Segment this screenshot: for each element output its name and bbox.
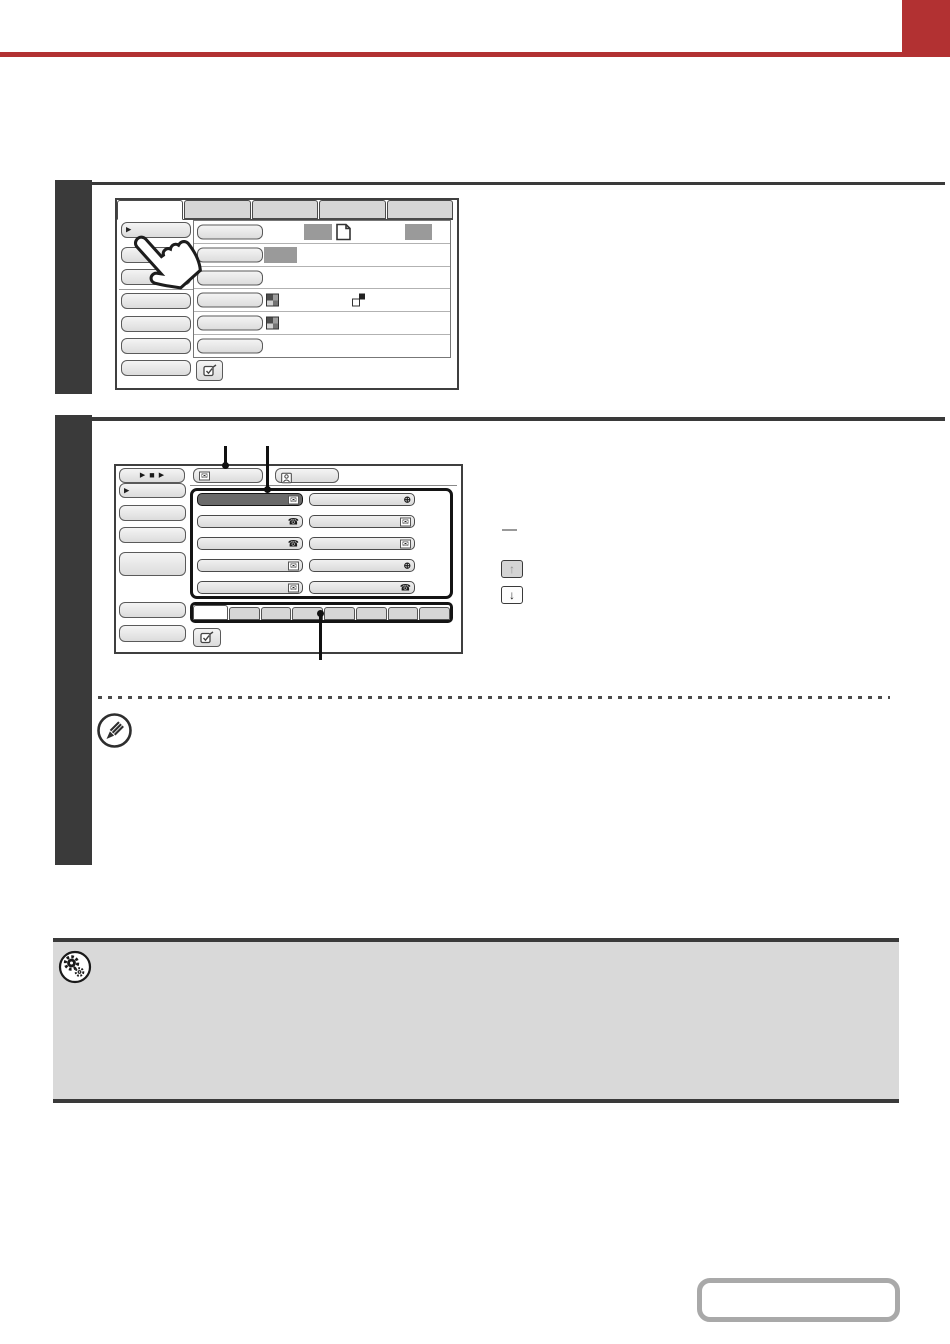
- envelope-icon: ✉: [288, 495, 299, 504]
- menu-button[interactable]: [119, 505, 186, 521]
- step1-number-bar: [55, 180, 92, 394]
- address-book-screen: ▶ ■ ▶ ✉ ▶ ✉⊕☎✉☎✉✉⊕✉☎ ↑ ↓: [114, 464, 463, 654]
- index-tab[interactable]: [193, 605, 228, 620]
- menu-arrow-icon: ▶: [124, 487, 129, 494]
- setting-button[interactable]: [197, 224, 263, 239]
- envelope-icon: ✉: [400, 539, 411, 548]
- one-touch-key[interactable]: ✉: [309, 537, 415, 550]
- arrow-up-icon: ↑: [509, 563, 515, 575]
- menu-button[interactable]: [119, 552, 186, 576]
- menu-button[interactable]: [121, 316, 191, 332]
- stop-icon: ■: [149, 471, 154, 480]
- menu-button[interactable]: ▶: [119, 483, 186, 498]
- index-tab[interactable]: [261, 607, 292, 620]
- value-placeholder: [405, 224, 432, 240]
- setting-row: [194, 244, 450, 267]
- index-tab[interactable]: [324, 607, 355, 620]
- one-touch-key-grid: ✉⊕☎✉☎✉✉⊕✉☎: [197, 493, 415, 594]
- one-touch-key[interactable]: ✉: [197, 581, 303, 594]
- step1-heading-rule: [92, 182, 945, 185]
- index-tab[interactable]: [356, 607, 387, 620]
- mode-tab[interactable]: [387, 200, 453, 219]
- index-tab[interactable]: [419, 607, 450, 620]
- menu-button[interactable]: [121, 360, 191, 376]
- step2-number-bar: [55, 415, 92, 865]
- menu-button[interactable]: [119, 527, 186, 543]
- address-review-button[interactable]: [275, 468, 339, 483]
- phone-icon: ☎: [400, 583, 411, 592]
- index-tab[interactable]: [388, 607, 419, 620]
- setting-button[interactable]: [197, 339, 263, 354]
- mode-tab[interactable]: [252, 200, 318, 219]
- scroll-down-button[interactable]: ↓: [501, 586, 523, 604]
- menu-button[interactable]: [121, 338, 191, 354]
- value-placeholder: [304, 224, 332, 240]
- resend-button[interactable]: ▶ ■ ▶: [119, 468, 185, 483]
- envelope-icon: ✉: [400, 517, 411, 526]
- header-separator: [190, 485, 457, 486]
- settings-row-list: [193, 220, 451, 358]
- one-touch-key[interactable]: ☎: [309, 581, 415, 594]
- one-touch-key[interactable]: ☎: [197, 537, 303, 550]
- callout-dot: [222, 462, 229, 469]
- scroll-up-button[interactable]: ↑: [501, 560, 523, 578]
- step2-heading-rule: [92, 417, 945, 421]
- envelope-icon: ✉: [288, 583, 299, 592]
- setting-button[interactable]: [197, 316, 263, 331]
- manual-page: { "page": {"background": "#ffffff", "acc…: [0, 0, 950, 1344]
- callout-dot: [264, 486, 271, 493]
- setting-row: [194, 221, 450, 244]
- one-touch-key[interactable]: ✉: [197, 559, 303, 572]
- header-corner-block: [902, 0, 950, 57]
- envelope-icon: ✉: [199, 471, 210, 480]
- one-touch-key[interactable]: ✉: [197, 493, 303, 506]
- mode-tab[interactable]: [117, 200, 183, 220]
- arrow-down-icon: ↓: [509, 589, 515, 601]
- address-entry-button[interactable]: ✉: [193, 468, 263, 483]
- confirm-icon-button[interactable]: [193, 628, 221, 647]
- callout-line: [266, 446, 269, 491]
- header-rule: [0, 52, 902, 57]
- system-settings-note-box: [53, 938, 899, 1103]
- page-indicator: [502, 529, 517, 531]
- phone-icon: ☎: [288, 517, 299, 526]
- mode-tab-strip: [117, 200, 453, 220]
- person-icon: [281, 470, 292, 481]
- index-tab[interactable]: [229, 607, 260, 620]
- play-icon: ▶: [159, 472, 164, 479]
- setting-row: [194, 312, 450, 335]
- color-mode-icon: [266, 294, 279, 307]
- globe-icon: ⊕: [403, 561, 411, 570]
- one-touch-key[interactable]: ☎: [197, 515, 303, 528]
- value-placeholder: [264, 247, 297, 263]
- callout-line: [319, 613, 322, 660]
- page-nav-button[interactable]: [697, 1278, 900, 1322]
- check-document-icon: [202, 363, 218, 378]
- setting-row: [194, 267, 450, 290]
- setting-row: [194, 289, 450, 312]
- play-icon: ▶: [140, 472, 145, 479]
- setting-button[interactable]: [197, 247, 263, 262]
- one-touch-key[interactable]: ✉: [309, 515, 415, 528]
- one-touch-key-area: ✉⊕☎✉☎✉✉⊕✉☎ ↑ ↓: [190, 488, 453, 599]
- setting-button[interactable]: [197, 270, 263, 285]
- mode-tab[interactable]: [184, 200, 250, 219]
- globe-icon: ⊕: [403, 495, 411, 504]
- color-mode-icon: [266, 317, 279, 330]
- one-touch-key[interactable]: ⊕: [309, 493, 415, 506]
- callout-dot: [317, 610, 324, 617]
- setting-button[interactable]: [197, 293, 263, 308]
- one-touch-key[interactable]: ⊕: [309, 559, 415, 572]
- mode-tab[interactable]: [319, 200, 385, 219]
- confirm-icon-button[interactable]: [196, 360, 223, 381]
- note-pencil-icon: [96, 712, 133, 749]
- system-settings-gears-icon: [58, 950, 92, 984]
- phone-icon: ☎: [288, 539, 299, 548]
- two-sided-icon: [352, 294, 365, 307]
- hand-cursor: [130, 220, 204, 298]
- check-document-icon: [199, 630, 215, 645]
- envelope-icon: ✉: [288, 561, 299, 570]
- menu-button[interactable]: [119, 625, 186, 642]
- dotted-divider: [98, 696, 890, 699]
- setting-row: [194, 335, 450, 357]
- menu-button[interactable]: [119, 602, 186, 618]
- original-icon: [334, 222, 352, 241]
